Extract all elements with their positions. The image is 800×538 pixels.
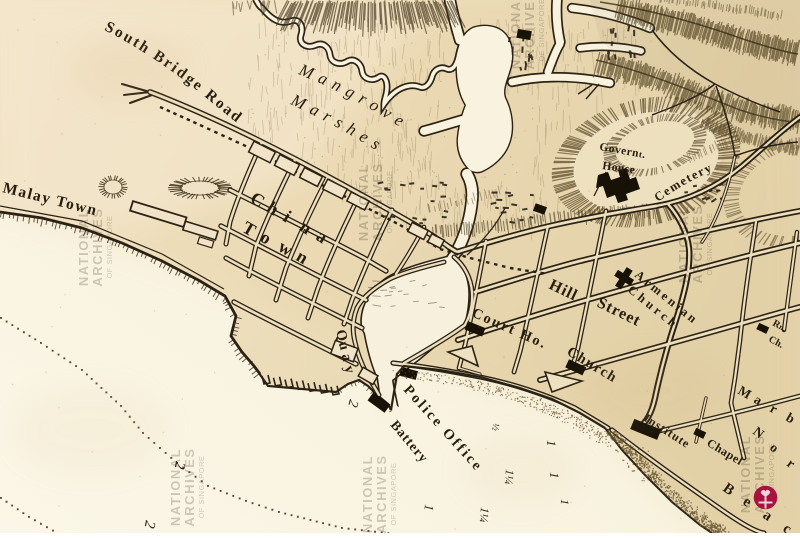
svg-text:1¼: 1¼ xyxy=(477,507,492,523)
svg-text:NATIONAL: NATIONAL xyxy=(738,435,753,513)
svg-text:NATIONAL: NATIONAL xyxy=(360,455,375,533)
svg-text:OF SINGAPORE: OF SINGAPORE xyxy=(105,215,114,278)
svg-text:1: 1 xyxy=(558,499,572,505)
svg-text:ARCHIVES: ARCHIVES xyxy=(182,447,197,526)
svg-text:ARCHIVES: ARCHIVES xyxy=(374,454,389,533)
svg-text:½: ½ xyxy=(489,423,501,432)
svg-text:NATIONAL: NATIONAL xyxy=(356,163,371,241)
svg-text:ARCHIVES: ARCHIVES xyxy=(370,162,385,241)
svg-text:ARCHIVES: ARCHIVES xyxy=(690,204,705,283)
svg-text:NATIONAL: NATIONAL xyxy=(508,0,523,69)
svg-text:OF SINGAPORE: OF SINGAPORE xyxy=(537,0,546,62)
svg-text:NATIONAL: NATIONAL xyxy=(76,208,91,286)
svg-text:OF SINGAPORE: OF SINGAPORE xyxy=(389,462,398,525)
svg-text:OF SINGAPORE: OF SINGAPORE xyxy=(385,170,394,233)
svg-text:1: 1 xyxy=(421,504,437,512)
svg-text:OF SINGAPORE: OF SINGAPORE xyxy=(705,212,714,275)
svg-text:NATIONAL: NATIONAL xyxy=(168,448,183,526)
svg-text:NATIONAL: NATIONAL xyxy=(676,205,691,283)
svg-text:OF SINGAPORE: OF SINGAPORE xyxy=(197,455,206,518)
svg-text:ARCHIVES: ARCHIVES xyxy=(90,207,105,286)
svg-text:ARCHIVES: ARCHIVES xyxy=(522,0,537,70)
